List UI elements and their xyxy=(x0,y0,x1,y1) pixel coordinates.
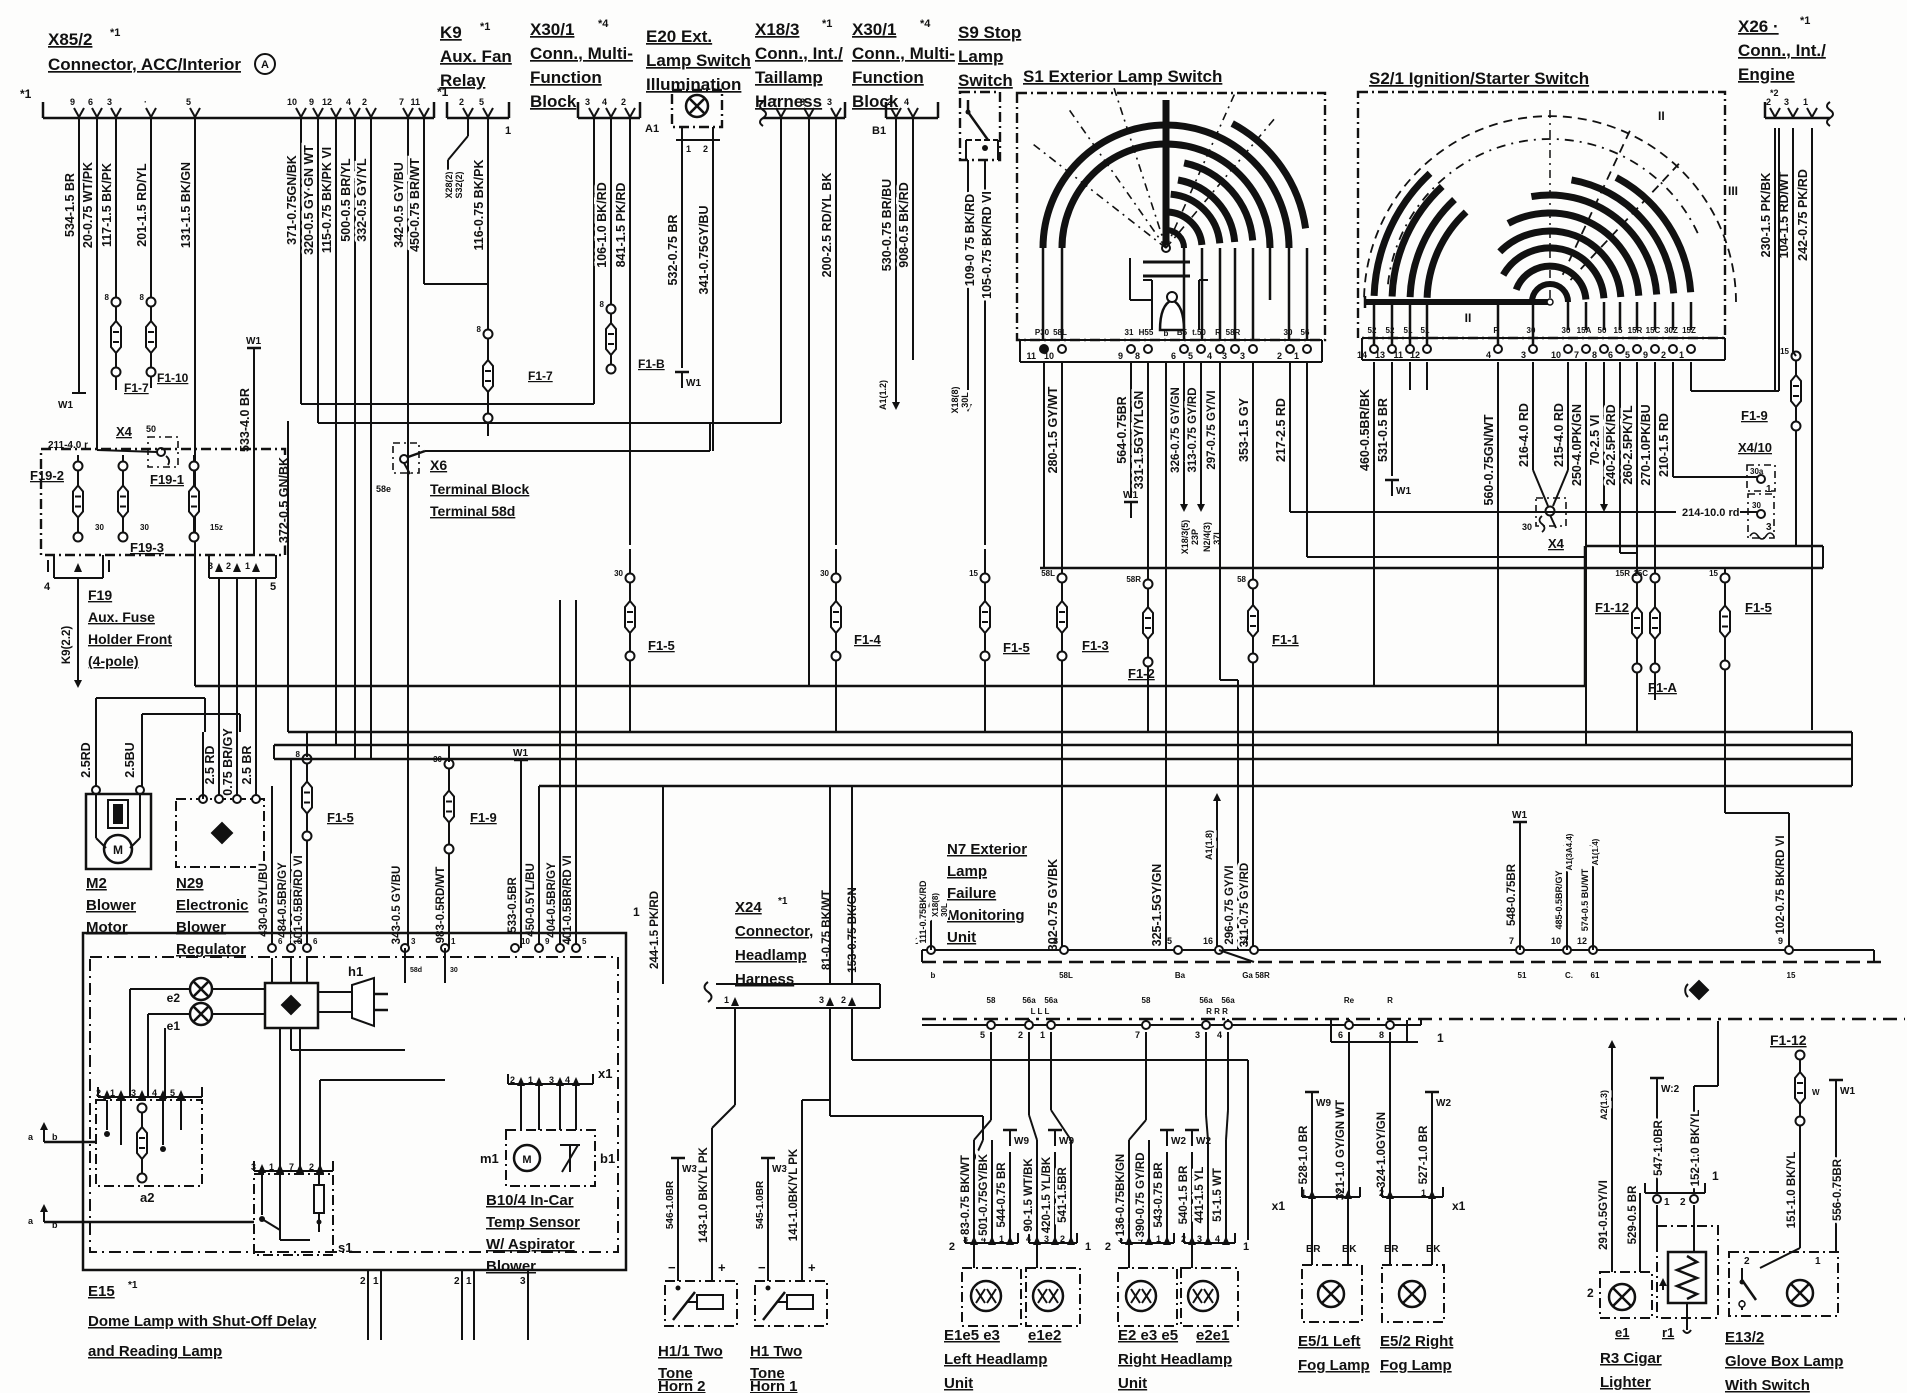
svg-text:2: 2 xyxy=(841,995,846,1005)
svg-text:15: 15 xyxy=(1787,971,1796,980)
svg-text:324-1.0GY/GN: 324-1.0GY/GN xyxy=(1376,1112,1388,1188)
svg-text:S2/1 Ignition/Starter Switch: S2/1 Ignition/Starter Switch xyxy=(1369,69,1589,88)
svg-text:*1: *1 xyxy=(1800,15,1810,27)
svg-text:2: 2 xyxy=(226,561,231,571)
svg-text:15: 15 xyxy=(1780,347,1789,356)
svg-text:Lamp Switch: Lamp Switch xyxy=(646,51,751,70)
svg-text:e1: e1 xyxy=(167,1019,181,1033)
svg-text:F1-5: F1-5 xyxy=(1003,640,1030,655)
svg-text:Dome Lamp with Shut-Off Delay: Dome Lamp with Shut-Off Delay xyxy=(88,1313,317,1330)
svg-text:*1: *1 xyxy=(778,896,788,907)
svg-text:50: 50 xyxy=(1598,326,1607,335)
svg-text:6: 6 xyxy=(88,97,93,107)
svg-text:W: W xyxy=(1812,1088,1820,1097)
svg-text:270-1.0PK/BU: 270-1.0PK/BU xyxy=(1639,404,1653,485)
svg-text:23P: 23P xyxy=(1190,529,1200,545)
svg-text:A1(1.4): A1(1.4) xyxy=(1591,838,1600,865)
svg-text:B5: B5 xyxy=(1177,328,1188,337)
svg-text:8: 8 xyxy=(600,300,605,309)
svg-text:W9: W9 xyxy=(1014,1136,1029,1147)
svg-text:W1: W1 xyxy=(513,748,528,759)
svg-text:b: b xyxy=(1164,329,1169,338)
svg-text:1: 1 xyxy=(1301,1188,1306,1198)
svg-text:450-0.5YL/BU: 450-0.5YL/BU xyxy=(525,863,537,937)
svg-text:E1e5 e3: E1e5 e3 xyxy=(944,1327,1000,1344)
svg-text:15C: 15C xyxy=(1646,326,1661,335)
svg-text:1: 1 xyxy=(245,561,250,571)
svg-text:30: 30 xyxy=(614,569,623,578)
svg-text:3: 3 xyxy=(1197,1234,1202,1244)
svg-text:141-1.0BK/YL PK: 141-1.0BK/YL PK xyxy=(788,1148,800,1241)
svg-text:2: 2 xyxy=(1379,1188,1384,1198)
svg-text:F19-2: F19-2 xyxy=(30,468,64,483)
svg-text:2: 2 xyxy=(887,97,892,107)
svg-text:9: 9 xyxy=(1778,936,1783,946)
svg-text:2: 2 xyxy=(1018,1030,1023,1040)
svg-text:8: 8 xyxy=(477,325,482,334)
svg-text:15R: 15R xyxy=(1628,326,1643,335)
svg-text:1: 1 xyxy=(1156,1234,1161,1244)
svg-text:546-1.0BR: 546-1.0BR xyxy=(665,1180,676,1229)
svg-text:2: 2 xyxy=(1680,1197,1686,1208)
svg-text:326-0.75 GY/GN: 326-0.75 GY/GN xyxy=(1170,387,1182,473)
svg-text:1: 1 xyxy=(1803,97,1808,107)
svg-text:15A: 15A xyxy=(1577,326,1592,335)
svg-text:58e: 58e xyxy=(376,484,391,494)
svg-text:N2/4(3): N2/4(3) xyxy=(1202,522,1212,552)
svg-text:30: 30 xyxy=(1562,326,1571,335)
svg-text:0.75 BR/GY: 0.75 BR/GY xyxy=(221,728,235,796)
svg-text:8: 8 xyxy=(1379,1030,1384,1040)
svg-text:1: 1 xyxy=(373,1276,379,1287)
svg-text:Unit: Unit xyxy=(944,1375,973,1392)
svg-text:1: 1 xyxy=(1421,1188,1426,1198)
svg-text:F1-12: F1-12 xyxy=(1770,1032,1807,1048)
svg-text:H55: H55 xyxy=(1139,328,1154,337)
svg-text:7: 7 xyxy=(1135,1030,1140,1040)
svg-text:325-1.5GY/GN: 325-1.5GY/GN xyxy=(1150,864,1164,947)
svg-text:560-0.75GN/WT: 560-0.75GN/WT xyxy=(1482,414,1496,505)
svg-text:58d: 58d xyxy=(410,967,422,974)
svg-text:291-0.5GY/VI: 291-0.5GY/VI xyxy=(1598,1180,1610,1250)
svg-text:1: 1 xyxy=(1294,351,1299,361)
svg-text:105-0.75 BK/RD VI: 105-0.75 BK/RD VI xyxy=(980,191,994,299)
svg-text:30: 30 xyxy=(1527,326,1536,335)
svg-text:A2(1.3): A2(1.3) xyxy=(1599,1090,1609,1120)
svg-text:50: 50 xyxy=(146,424,156,434)
svg-text:BK: BK xyxy=(1426,1244,1441,1255)
svg-text:10: 10 xyxy=(287,97,297,107)
svg-text:W/ Aspirator: W/ Aspirator xyxy=(486,1236,575,1253)
svg-text:13: 13 xyxy=(1375,350,1385,360)
svg-text:2: 2 xyxy=(1181,1234,1186,1244)
svg-text:1: 1 xyxy=(451,937,456,946)
svg-text:−: − xyxy=(668,1260,676,1275)
svg-text:3: 3 xyxy=(1195,1030,1200,1040)
svg-text:9: 9 xyxy=(1118,351,1123,361)
svg-text:X4/10: X4/10 xyxy=(1738,440,1772,455)
svg-text:15R: 15R xyxy=(1615,569,1630,578)
svg-text:5: 5 xyxy=(1167,936,1172,946)
svg-text:56a: 56a xyxy=(1221,996,1235,1005)
svg-text:311-0.75 GY/RD: 311-0.75 GY/RD xyxy=(1239,863,1251,947)
svg-text:1: 1 xyxy=(686,144,691,154)
svg-text:3: 3 xyxy=(107,97,112,107)
svg-text:10: 10 xyxy=(1551,350,1561,360)
svg-text:II: II xyxy=(1658,109,1665,123)
svg-text:Re: Re xyxy=(1344,996,1355,1005)
svg-text:420-1.5 YL/BK: 420-1.5 YL/BK xyxy=(1041,1156,1053,1233)
svg-text:5: 5 xyxy=(170,1088,175,1098)
svg-text:8: 8 xyxy=(1053,936,1058,946)
svg-text:30: 30 xyxy=(1522,522,1532,532)
svg-text:56a: 56a xyxy=(1044,996,1058,1005)
svg-text:a2: a2 xyxy=(140,1190,154,1205)
svg-text:X4: X4 xyxy=(116,424,133,439)
svg-text:3: 3 xyxy=(520,1276,526,1287)
svg-text:H1/1 Two: H1/1 Two xyxy=(658,1343,723,1360)
svg-text:70-2.5 VI: 70-2.5 VI xyxy=(1588,415,1602,466)
svg-text:841-1.5 PK/RD: 841-1.5 PK/RD xyxy=(614,183,628,268)
svg-text:242-0.75 PK/RD: 242-0.75 PK/RD xyxy=(1796,169,1810,261)
svg-text:W2: W2 xyxy=(1436,1098,1451,1109)
svg-text:*1: *1 xyxy=(822,18,832,30)
svg-text:A1(1.2): A1(1.2) xyxy=(878,380,888,410)
svg-text:441-1.5 YL: 441-1.5 YL xyxy=(1194,1167,1206,1224)
svg-text:BR: BR xyxy=(1384,1244,1399,1255)
svg-text:II: II xyxy=(1465,311,1472,325)
svg-text:Horn 2: Horn 2 xyxy=(658,1378,706,1393)
svg-text:m1: m1 xyxy=(480,1151,499,1166)
svg-text:Conn., Multi-: Conn., Multi- xyxy=(530,44,633,63)
svg-text:10: 10 xyxy=(1551,936,1561,946)
svg-text:6: 6 xyxy=(1171,351,1176,361)
svg-text:2: 2 xyxy=(1587,1286,1594,1300)
svg-text:11: 11 xyxy=(410,97,420,107)
svg-text:3: 3 xyxy=(1240,351,1245,361)
svg-text:544-0.75 BR: 544-0.75 BR xyxy=(996,1162,1008,1228)
svg-text:Terminal 58d: Terminal 58d xyxy=(430,503,515,519)
svg-text:30: 30 xyxy=(140,523,149,532)
svg-text:5: 5 xyxy=(270,581,276,593)
svg-text:58: 58 xyxy=(987,996,996,1005)
svg-text:X85/2: X85/2 xyxy=(48,30,92,49)
svg-text:4: 4 xyxy=(152,1088,157,1098)
svg-text:E20 Ext.: E20 Ext. xyxy=(646,27,712,46)
svg-text:E5/1 Left: E5/1 Left xyxy=(1298,1333,1361,1350)
svg-text:320-0.5 GY·GN WT: 320-0.5 GY·GN WT xyxy=(302,145,316,255)
svg-text:151-1.0 BK/YL: 151-1.0 BK/YL xyxy=(1786,1152,1798,1229)
svg-text:280-1.5 GY/WT: 280-1.5 GY/WT xyxy=(1046,386,1060,473)
svg-text:30: 30 xyxy=(450,967,458,974)
svg-text:F1-9: F1-9 xyxy=(470,810,497,825)
svg-text:30: 30 xyxy=(95,523,104,532)
svg-text:F1-5: F1-5 xyxy=(327,810,354,825)
svg-text:61: 61 xyxy=(1591,971,1600,980)
svg-text:3: 3 xyxy=(1044,1234,1049,1244)
svg-text:404-0.5BR/GY: 404-0.5BR/GY xyxy=(546,862,558,938)
svg-text:2: 2 xyxy=(949,1241,955,1253)
svg-text:*1: *1 xyxy=(20,87,32,101)
svg-text:3: 3 xyxy=(585,97,590,107)
svg-text:2: 2 xyxy=(362,97,367,107)
svg-text:X30/1: X30/1 xyxy=(852,20,896,39)
svg-text:15: 15 xyxy=(969,569,978,578)
svg-text:401-0.5BR/RD VI: 401-0.5BR/RD VI xyxy=(562,855,574,944)
svg-text:297-0.75 GY/VI: 297-0.75 GY/VI xyxy=(1206,390,1218,469)
svg-text:s1: s1 xyxy=(338,1240,352,1255)
svg-text:111-0.75BK/RD: 111-0.75BK/RD xyxy=(918,880,928,944)
svg-text:4: 4 xyxy=(1207,351,1212,361)
svg-text:30: 30 xyxy=(820,569,829,578)
svg-text:117-1.5 BK/PK: 117-1.5 BK/PK xyxy=(100,163,114,247)
svg-text:X30/1: X30/1 xyxy=(530,20,574,39)
svg-text:1: 1 xyxy=(110,1088,115,1098)
svg-text:F1-5: F1-5 xyxy=(1745,600,1772,615)
svg-text:56: 56 xyxy=(1301,328,1310,337)
svg-text:531-0.5 BR: 531-0.5 BR xyxy=(1376,398,1390,462)
svg-text:R: R xyxy=(1387,996,1393,1005)
svg-text:Electronic: Electronic xyxy=(176,897,249,914)
svg-text:Aux. Fuse: Aux. Fuse xyxy=(88,609,155,625)
svg-text:Conn., Int./: Conn., Int./ xyxy=(755,44,843,63)
svg-text:*1: *1 xyxy=(437,85,449,99)
svg-text:x1: x1 xyxy=(1272,1199,1286,1213)
svg-text:F1-3: F1-3 xyxy=(1082,638,1109,653)
svg-text:12: 12 xyxy=(1410,350,1420,360)
svg-text:12: 12 xyxy=(1577,936,1587,946)
svg-text:30L: 30L xyxy=(940,903,949,917)
svg-text:W1: W1 xyxy=(686,378,701,389)
svg-text:216-4.0 RD: 216-4.0 RD xyxy=(1517,403,1531,467)
svg-text:9: 9 xyxy=(70,97,75,107)
svg-text:M2: M2 xyxy=(86,875,107,892)
svg-text:3: 3 xyxy=(1521,350,1526,360)
svg-text:7: 7 xyxy=(1509,936,1514,946)
svg-text:5: 5 xyxy=(1625,350,1630,360)
svg-text:4: 4 xyxy=(1215,1234,1220,1244)
svg-text:R: R xyxy=(1215,328,1221,337)
svg-text:7: 7 xyxy=(399,97,404,107)
svg-text:III: III xyxy=(1728,184,1738,198)
svg-text:201-1.5 RD/YL: 201-1.5 RD/YL xyxy=(135,163,149,247)
svg-text:*4: *4 xyxy=(598,18,609,30)
svg-text:S1 Exterior Lamp Switch: S1 Exterior Lamp Switch xyxy=(1023,67,1222,86)
svg-text:X18(8): X18(8) xyxy=(931,893,940,917)
svg-text:E13/2: E13/2 xyxy=(1725,1329,1764,1346)
svg-text:e1: e1 xyxy=(1615,1325,1629,1340)
svg-text:2: 2 xyxy=(96,1088,101,1098)
svg-text:353-1.5 GY: 353-1.5 GY xyxy=(1237,397,1251,462)
svg-text:152-1.0 BK/YL: 152-1.0 BK/YL xyxy=(1690,1110,1702,1187)
svg-text:Ga 58R: Ga 58R xyxy=(1242,971,1270,980)
svg-text:−: − xyxy=(758,1260,766,1275)
svg-text:*4: *4 xyxy=(920,18,931,30)
svg-text:e2: e2 xyxy=(167,991,181,1005)
svg-text:430-0.5YL/BU: 430-0.5YL/BU xyxy=(258,863,270,937)
svg-text:115-0.75 BK/PK VI: 115-0.75 BK/PK VI xyxy=(320,147,334,253)
svg-text:1: 1 xyxy=(1243,1241,1249,1253)
svg-text:1: 1 xyxy=(1040,1030,1045,1040)
svg-text:Monitoring: Monitoring xyxy=(947,907,1024,924)
svg-text:W2: W2 xyxy=(1196,1136,1211,1147)
svg-text:b: b xyxy=(52,1220,58,1230)
svg-text:215-4.0 RD: 215-4.0 RD xyxy=(1552,403,1566,467)
svg-text:Lamp: Lamp xyxy=(947,863,987,880)
svg-text:4: 4 xyxy=(346,97,351,107)
svg-text:116-0.75 BK/PK: 116-0.75 BK/PK xyxy=(472,159,486,250)
svg-text:Temp Sensor: Temp Sensor xyxy=(486,1214,580,1231)
svg-text:58R: 58R xyxy=(1126,575,1141,584)
svg-text:Lamp: Lamp xyxy=(958,47,1003,66)
svg-text:101-0.5BR/RD VI: 101-0.5BR/RD VI xyxy=(293,855,305,944)
svg-text:30L: 30L xyxy=(960,392,970,408)
svg-text:51: 51 xyxy=(1404,326,1413,335)
svg-text:h1: h1 xyxy=(348,964,363,979)
svg-text:K9(2.2): K9(2.2) xyxy=(61,626,73,665)
svg-text:58L: 58L xyxy=(1041,569,1055,578)
svg-text:533-0.5BR: 533-0.5BR xyxy=(507,877,519,933)
svg-text:51: 51 xyxy=(1421,326,1430,335)
svg-text:Function: Function xyxy=(530,68,602,87)
svg-text:529-0.5 BR: 529-0.5 BR xyxy=(1627,1185,1639,1245)
svg-text:545-1.0BR: 545-1.0BR xyxy=(755,1180,766,1229)
svg-text:51: 51 xyxy=(1518,971,1527,980)
svg-text:Harness: Harness xyxy=(735,971,794,988)
svg-text:530-0.75 BR/BU: 530-0.75 BR/BU xyxy=(880,179,894,271)
svg-text:58: 58 xyxy=(1142,996,1151,1005)
svg-text:W3: W3 xyxy=(682,1164,697,1175)
svg-text:143-1.0 BK/YL PK: 143-1.0 BK/YL PK xyxy=(698,1146,710,1242)
svg-text:3: 3 xyxy=(827,97,832,107)
svg-text:2.5 BR: 2.5 BR xyxy=(240,746,254,785)
svg-text:484-0.5BR/GY: 484-0.5BR/GY xyxy=(277,862,289,938)
svg-text:F1-B: F1-B xyxy=(638,357,665,371)
svg-text:532-0.75 BR: 532-0.75 BR xyxy=(666,215,680,286)
svg-text:+: + xyxy=(808,1260,816,1275)
svg-text:Failure: Failure xyxy=(947,885,996,902)
svg-text:2.5 RD: 2.5 RD xyxy=(203,746,217,785)
svg-text:390-0.75 GY/RD: 390-0.75 GY/RD xyxy=(1135,1152,1147,1237)
svg-text:4: 4 xyxy=(602,97,607,107)
svg-text:A1: A1 xyxy=(645,123,659,135)
svg-text:L L L: L L L xyxy=(1031,1007,1050,1016)
svg-text:6: 6 xyxy=(297,937,302,946)
svg-text:58L: 58L xyxy=(1053,328,1067,337)
svg-text:371-0.75GN/BK: 371-0.75GN/BK xyxy=(285,155,299,245)
svg-text:Horn 1: Horn 1 xyxy=(750,1378,798,1393)
svg-text:and Reading Lamp: and Reading Lamp xyxy=(88,1343,222,1360)
svg-text:30: 30 xyxy=(1284,328,1293,337)
svg-text:2.5BU: 2.5BU xyxy=(123,742,137,777)
svg-text:A1(1.8): A1(1.8) xyxy=(1204,830,1214,860)
svg-text:332-0.5 GY/YL: 332-0.5 GY/YL xyxy=(355,158,369,242)
svg-text:H1 Two: H1 Two xyxy=(750,1343,802,1360)
svg-text:106-1.0 BK/RD: 106-1.0 BK/RD xyxy=(595,182,609,267)
svg-text:E5/2 Right: E5/2 Right xyxy=(1380,1333,1453,1350)
svg-text:(4-pole): (4-pole) xyxy=(88,653,139,669)
svg-text:7: 7 xyxy=(772,97,777,107)
svg-text:2: 2 xyxy=(309,1162,314,1172)
svg-text:341-0.75GY/BU: 341-0.75GY/BU xyxy=(697,206,711,295)
svg-text:1: 1 xyxy=(724,995,729,1005)
svg-text:F19-3: F19-3 xyxy=(130,540,164,555)
svg-text:6: 6 xyxy=(278,937,283,946)
svg-text:3: 3 xyxy=(1766,522,1772,533)
svg-text:5: 5 xyxy=(186,97,191,107)
svg-text:1: 1 xyxy=(999,1234,1004,1244)
svg-text:7: 7 xyxy=(566,937,571,946)
svg-text:F1-5: F1-5 xyxy=(648,638,675,653)
svg-text:6: 6 xyxy=(1608,350,1613,360)
svg-text:6: 6 xyxy=(1338,1030,1343,1040)
svg-text:58: 58 xyxy=(1237,575,1246,584)
svg-text:214-10.0 rd: 214-10.0 rd xyxy=(1682,507,1739,519)
svg-text:5: 5 xyxy=(980,1030,985,1040)
svg-text:Left Headlamp: Left Headlamp xyxy=(944,1351,1047,1368)
svg-text:2: 2 xyxy=(1744,1256,1750,1267)
svg-text:W1: W1 xyxy=(1840,1086,1855,1097)
svg-text:S32(2): S32(2) xyxy=(454,171,464,198)
svg-text:8: 8 xyxy=(800,97,805,107)
svg-text:X28(2): X28(2) xyxy=(444,171,454,198)
svg-text:Regulator: Regulator xyxy=(176,941,246,958)
svg-text:2: 2 xyxy=(360,1276,366,1287)
svg-text:6: 6 xyxy=(313,937,318,946)
svg-text:b: b xyxy=(931,971,936,980)
svg-text:X6: X6 xyxy=(430,457,447,473)
svg-text:X24: X24 xyxy=(735,899,762,916)
svg-text:S9 Stop: S9 Stop xyxy=(958,23,1021,42)
svg-text:Conn., Multi-: Conn., Multi- xyxy=(852,44,955,63)
svg-text:15: 15 xyxy=(1614,326,1623,335)
svg-text:3: 3 xyxy=(1784,97,1789,107)
svg-text:533-4.0 BR: 533-4.0 BR xyxy=(238,388,252,452)
svg-text:3: 3 xyxy=(411,937,416,946)
svg-text:Connector, ACC/Interior: Connector, ACC/Interior xyxy=(48,55,241,74)
svg-text:2: 2 xyxy=(1661,350,1666,360)
svg-text:F1-12: F1-12 xyxy=(1595,600,1629,615)
svg-text:b1: b1 xyxy=(600,1151,615,1166)
svg-text:Fog Lamp: Fog Lamp xyxy=(1298,1357,1370,1374)
svg-text:F19-1: F19-1 xyxy=(150,472,184,487)
svg-text:1: 1 xyxy=(466,1276,472,1287)
svg-text:W9: W9 xyxy=(1316,1098,1331,1109)
svg-text:A: A xyxy=(261,59,269,71)
svg-text:14: 14 xyxy=(1357,350,1367,360)
svg-text:2.5RD: 2.5RD xyxy=(79,742,93,777)
svg-text:20-0.75 WT/PK: 20-0.75 WT/PK xyxy=(81,162,95,248)
svg-text:Unit: Unit xyxy=(947,929,976,946)
svg-text:56a: 56a xyxy=(1022,996,1036,1005)
svg-text:Headlamp: Headlamp xyxy=(735,947,807,964)
svg-text:K9: K9 xyxy=(440,23,462,42)
svg-text:296-0.75 GY/VI: 296-0.75 GY/VI xyxy=(1224,865,1236,944)
svg-text:548-0.75BR: 548-0.75BR xyxy=(1506,863,1518,926)
svg-text:F1-2: F1-2 xyxy=(1128,666,1155,681)
svg-text:X18/3: X18/3 xyxy=(755,20,799,39)
svg-text:W3: W3 xyxy=(772,1164,787,1175)
svg-text:Taillamp: Taillamp xyxy=(755,68,823,87)
svg-text:217-2.5 RD: 217-2.5 RD xyxy=(1274,398,1288,462)
svg-text:15Z: 15Z xyxy=(1682,326,1696,335)
svg-text:X4: X4 xyxy=(1548,536,1565,551)
svg-text:564-0.75BR: 564-0.75BR xyxy=(1115,396,1129,463)
svg-text:W1: W1 xyxy=(1396,486,1411,497)
svg-text:8: 8 xyxy=(296,750,301,759)
svg-text:30: 30 xyxy=(1752,501,1761,510)
svg-text:136-0.75BK/GN: 136-0.75BK/GN xyxy=(1115,1154,1127,1236)
